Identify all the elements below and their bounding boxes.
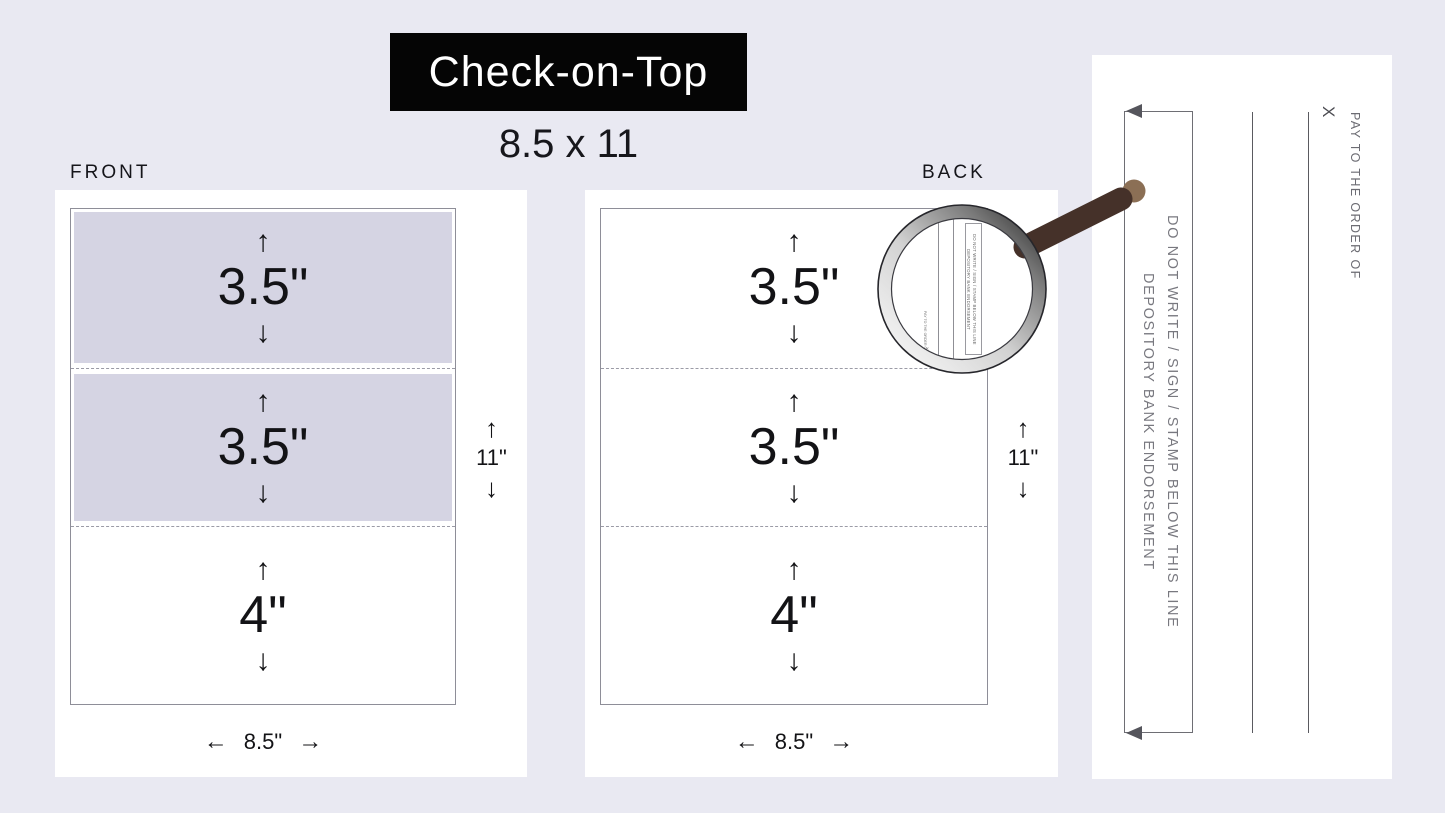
- page-title: Check-on-Top: [429, 48, 709, 97]
- section-height-label: 3.5": [218, 421, 309, 474]
- up-arrow-icon: ↑: [256, 387, 271, 417]
- magnified-line: [938, 219, 939, 359]
- front-perforation-line-1: [71, 368, 455, 369]
- down-arrow-icon: ↓: [787, 478, 802, 508]
- up-arrow-icon: ↑: [787, 555, 802, 585]
- signature-line: [1252, 112, 1253, 733]
- sheet-size-subtitle: 8.5 x 11: [390, 122, 747, 167]
- section-height-label: 3.5": [749, 421, 840, 474]
- do-not-write-text: DO NOT WRITE / SIGN / STAMP BELOW THIS L…: [1156, 111, 1180, 733]
- up-arrow-icon: ↑: [787, 227, 802, 257]
- down-arrow-icon: ↓: [787, 318, 802, 348]
- magnified-x-mark: X: [925, 344, 930, 352]
- up-arrow-icon: ↑: [256, 227, 271, 257]
- pay-to-the-order-of-text: PAY TO THE ORDER OF: [1348, 112, 1362, 412]
- up-arrow-icon: ↑: [1017, 415, 1030, 441]
- section-height-label: 3.5": [749, 261, 840, 314]
- right-arrow-icon: →: [298, 730, 322, 754]
- down-arrow-icon: ↓: [256, 646, 271, 676]
- front-section-1-dimension: ↑ 3.5" ↓: [70, 212, 456, 363]
- front-section-3-dimension: ↑ 4" ↓: [70, 526, 456, 705]
- down-arrow-icon: ↓: [256, 318, 271, 348]
- magnified-depository-text: DEPOSITORY BANK ENDORSEMENT: [966, 225, 971, 353]
- back-section-3-dimension: ↑ 4" ↓: [600, 526, 988, 705]
- front-section-2-dimension: ↑ 3.5" ↓: [70, 374, 456, 521]
- back-width-dimension: ← 8.5" →: [600, 727, 988, 757]
- sheet-width-label: 8.5": [775, 729, 813, 755]
- down-arrow-icon: ↓: [256, 478, 271, 508]
- back-height-dimension: ↑ 11" ↓: [988, 403, 1058, 513]
- depository-bank-text: DEPOSITORY BANK ENDORSEMENT: [1132, 111, 1156, 733]
- magnified-do-not-write-text: DO NOT WRITE / SIGN / STAMP BELOW THIS L…: [972, 225, 977, 353]
- back-perforation-line-1: [601, 368, 987, 369]
- section-height-label: 4": [239, 589, 286, 642]
- left-arrow-icon: ←: [204, 730, 228, 754]
- back-section-2-dimension: ↑ 3.5" ↓: [600, 374, 988, 521]
- front-height-dimension: ↑ 11" ↓: [456, 403, 527, 513]
- down-arrow-icon: ↓: [1017, 475, 1030, 501]
- sheet-width-label: 8.5": [244, 729, 282, 755]
- signature-line: [1308, 112, 1309, 733]
- title-banner: Check-on-Top: [390, 33, 747, 111]
- down-arrow-icon: ↓: [787, 646, 802, 676]
- up-arrow-icon: ↑: [485, 415, 498, 441]
- right-arrow-icon: →: [829, 730, 853, 754]
- back-label: BACK: [922, 162, 986, 184]
- magnified-line: [953, 219, 954, 359]
- up-arrow-icon: ↑: [787, 387, 802, 417]
- section-height-label: 4": [770, 589, 817, 642]
- up-arrow-icon: ↑: [256, 555, 271, 585]
- sheet-height-label: 11": [476, 447, 507, 469]
- down-arrow-icon: ↓: [485, 475, 498, 501]
- sheet-height-label: 11": [1008, 447, 1039, 469]
- left-arrow-icon: ←: [735, 730, 759, 754]
- infographic-page: Check-on-Top 8.5 x 11 FRONT ↑ 3.5" ↓ ↑ 3…: [0, 0, 1445, 813]
- x-mark: X: [1318, 106, 1338, 117]
- front-label: FRONT: [70, 162, 150, 184]
- magnifier-lens-view: DO NOT WRITE / SIGN / STAMP BELOW THIS L…: [892, 219, 1032, 359]
- front-width-dimension: ← 8.5" →: [70, 727, 456, 757]
- section-height-label: 3.5": [218, 261, 309, 314]
